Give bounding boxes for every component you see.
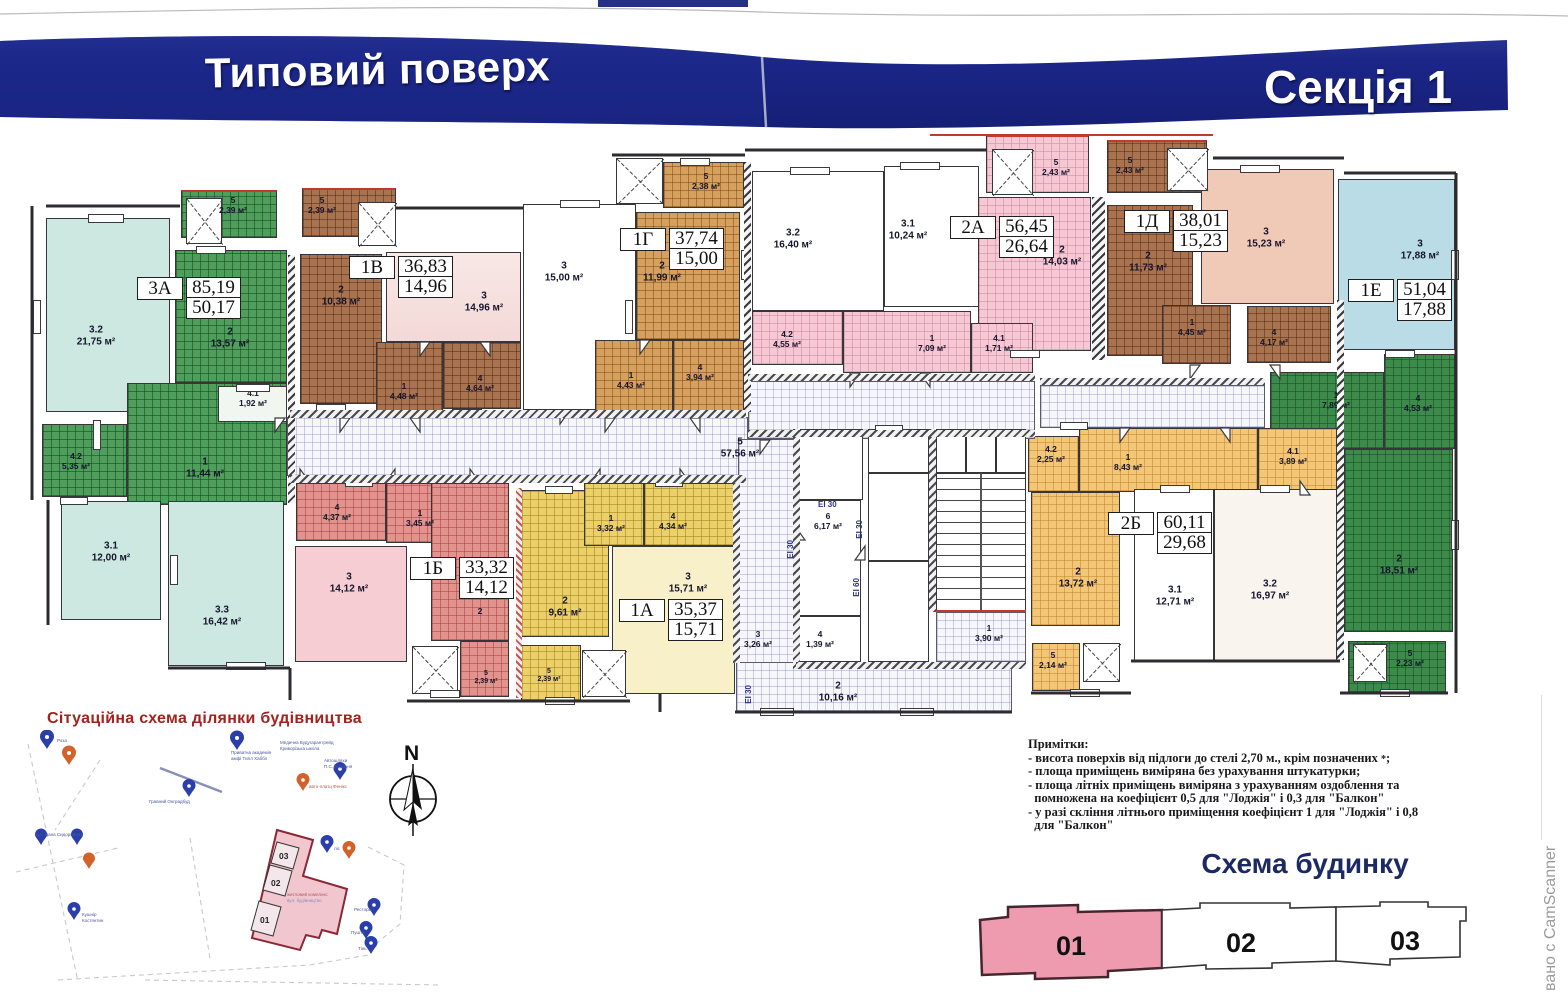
svg-text:П.С. Видання: П.С. Видання bbox=[324, 764, 353, 769]
svg-text:Автошляхи: Автошляхи bbox=[324, 758, 348, 763]
svg-text:Пушта: Пушта bbox=[351, 930, 365, 935]
svg-text:амфі Тилл Хаббл: амфі Тилл Хаббл bbox=[231, 756, 268, 761]
svg-text:02: 02 bbox=[1226, 928, 1256, 958]
svg-text:вул. Івана Сидоровича: вул. Івана Сидоровича bbox=[35, 832, 83, 837]
svg-text:Тінь: Тінь bbox=[358, 946, 367, 951]
svg-text:Приватна академія: Приватна академія bbox=[231, 750, 272, 755]
svg-text:N: N bbox=[404, 742, 419, 765]
svg-text:Костянтин: Костянтин bbox=[82, 918, 104, 923]
svg-text:вул. будівництво: вул. будівництво bbox=[287, 898, 322, 903]
svg-text:авто-платц Фенікс: авто-платц Фенікс bbox=[309, 784, 348, 789]
svg-text:ліс: ліс bbox=[334, 846, 341, 851]
svg-text:Кушнір: Кушнір bbox=[82, 912, 97, 917]
svg-text:Гравний Онградбуд: Гравний Онградбуд bbox=[149, 798, 190, 804]
svg-text:02: 02 bbox=[271, 878, 281, 888]
svg-text:01: 01 bbox=[260, 915, 270, 925]
svg-text:житловий комплекс: житловий комплекс bbox=[287, 891, 329, 897]
svg-text:03: 03 bbox=[1390, 926, 1420, 956]
svg-text:Медична Будугарантрейд: Медична Будугарантрейд bbox=[280, 739, 334, 745]
svg-text:Ресторан: Ресторан bbox=[354, 907, 374, 912]
svg-text:Роза: Роза bbox=[57, 738, 67, 743]
svg-text:Криворізька школа: Криворізька школа bbox=[280, 746, 320, 751]
svg-text:01: 01 bbox=[1056, 931, 1086, 961]
svg-text:03: 03 bbox=[279, 851, 289, 861]
